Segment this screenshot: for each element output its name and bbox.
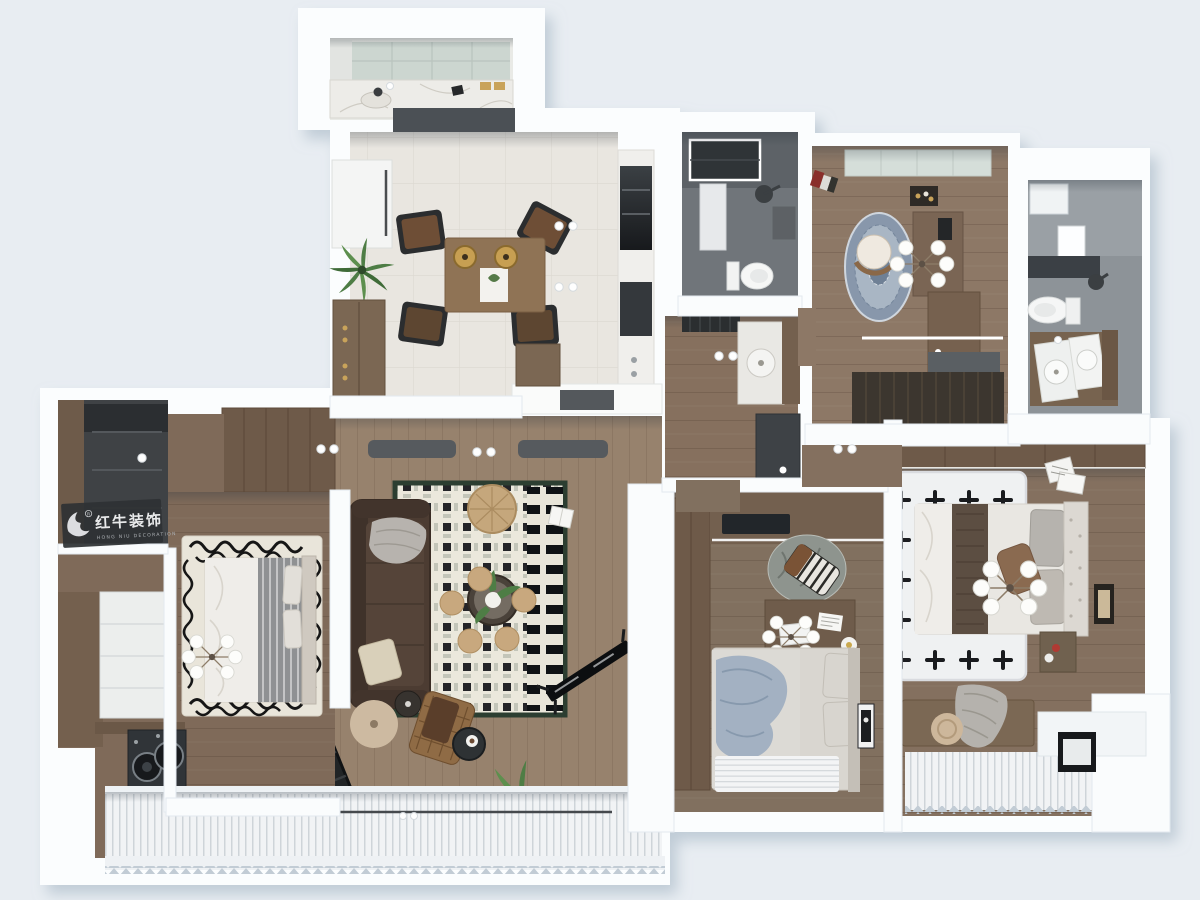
island-cabinet bbox=[516, 344, 560, 386]
floorplan-render: R 红牛装饰 HONG NIU DECORATION bbox=[0, 0, 1200, 900]
wall-tv bbox=[722, 514, 790, 534]
hallway-mat bbox=[368, 440, 456, 458]
headboard bbox=[1064, 502, 1088, 636]
pillow bbox=[283, 565, 303, 604]
oven-appliance bbox=[620, 166, 652, 250]
wall-art-frame bbox=[1094, 584, 1114, 624]
floorplan-svg: R 红牛装饰 HONG NIU DECORATION bbox=[0, 0, 1200, 900]
fridge bbox=[332, 160, 392, 248]
registered-mark: R bbox=[87, 511, 90, 517]
pillow bbox=[283, 610, 302, 649]
faucet-icon bbox=[374, 88, 383, 97]
room-utility-counter bbox=[330, 38, 515, 132]
bath-shelf bbox=[772, 206, 796, 240]
room-bathroom-main bbox=[682, 132, 798, 308]
tray-table bbox=[453, 728, 485, 760]
room-bathroom-ensuite bbox=[1028, 180, 1142, 418]
pillow bbox=[1029, 509, 1065, 566]
window-seat bbox=[928, 352, 1000, 372]
tray-icon bbox=[480, 82, 491, 90]
table-runner bbox=[480, 268, 508, 302]
headboard bbox=[302, 556, 316, 704]
brand-watermark: R 红牛装饰 HONG NIU DECORATION bbox=[61, 498, 177, 548]
serving-tray bbox=[910, 186, 938, 206]
striped-rug bbox=[715, 756, 839, 792]
bay-window-band bbox=[852, 372, 1004, 428]
toilet-tank bbox=[727, 262, 739, 290]
white-wardrobe bbox=[100, 592, 164, 718]
bed-west bbox=[205, 556, 316, 704]
sofa bbox=[350, 500, 430, 708]
round-pouf bbox=[931, 713, 963, 745]
bedroom-door-opening bbox=[168, 414, 224, 494]
nightstand bbox=[1040, 632, 1076, 672]
vanity-side-cabinet bbox=[782, 318, 800, 404]
washer-dryer bbox=[128, 730, 186, 794]
magazine bbox=[548, 506, 573, 528]
wall-poster bbox=[858, 704, 874, 748]
shower-glass-track bbox=[1028, 256, 1100, 278]
room-kitchen-dining bbox=[329, 132, 662, 414]
hallway-mat bbox=[518, 440, 608, 458]
bed-master bbox=[915, 502, 1088, 636]
toilet-tank bbox=[1066, 298, 1080, 324]
brand-name-cn: 红牛装饰 bbox=[95, 511, 164, 533]
room-entry-powder bbox=[665, 310, 800, 484]
room-study bbox=[810, 146, 1008, 432]
entry-console bbox=[756, 414, 800, 484]
cooktop-appliance bbox=[620, 282, 652, 336]
lounge-chair bbox=[857, 235, 891, 269]
shower-glass-panel bbox=[700, 184, 726, 250]
room-bedroom-middle bbox=[672, 490, 888, 812]
dark-counter-edge bbox=[393, 108, 515, 132]
